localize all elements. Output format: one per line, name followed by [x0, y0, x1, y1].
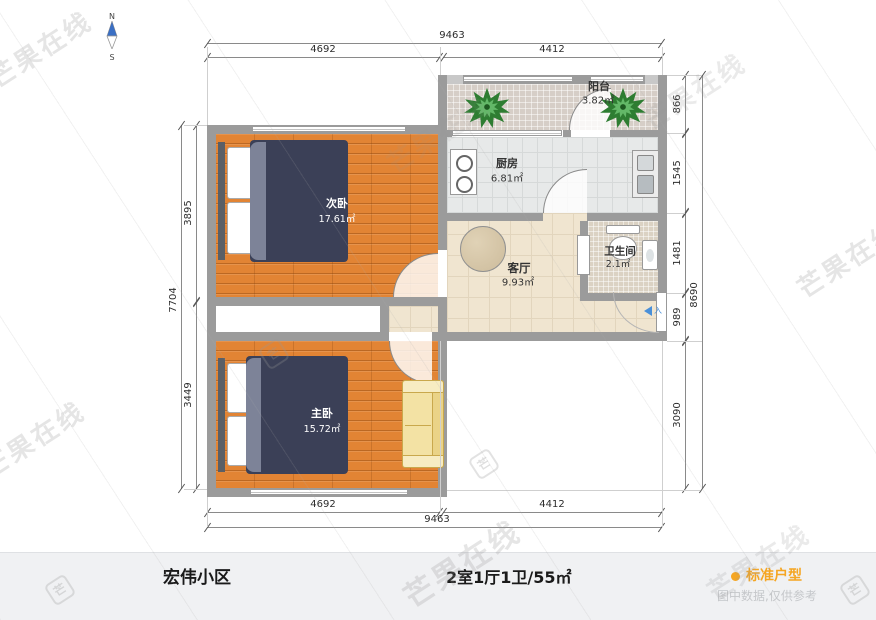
extension-line — [662, 341, 663, 527]
wall — [440, 130, 452, 137]
dimension-line — [685, 133, 686, 213]
dim-label-right-balcony: 866 — [673, 94, 683, 113]
dim-label-right-kitchen: 1545 — [673, 160, 683, 185]
dimension-line — [207, 57, 440, 58]
wall — [440, 213, 543, 221]
extension-line — [667, 213, 685, 214]
wall-cap — [645, 75, 658, 84]
compass: N S — [98, 12, 126, 62]
room-area-bathroom: 2.1㎡ — [606, 256, 631, 270]
extension-line — [667, 293, 685, 294]
layout-spec: 2室1厅1卫/55㎡ — [446, 564, 572, 588]
floorplan-page: N S 入 — [0, 0, 876, 620]
room-label-master-bedroom: 主卧 — [311, 405, 333, 421]
wall — [207, 297, 447, 306]
dimension-line — [196, 302, 197, 489]
footer-bar: 宏伟小区 2室1厅1卫/55㎡ 标准户型 图中数据,仅供参考 — [0, 552, 876, 620]
dimension-line — [685, 293, 686, 341]
sofa — [402, 380, 444, 468]
dim-label-left-total: 7704 — [169, 287, 179, 312]
balcony-window — [463, 76, 573, 82]
dim-label-top-right: 4412 — [539, 44, 564, 56]
burner — [456, 176, 473, 193]
bed-headboard — [218, 142, 225, 260]
round-table — [460, 226, 506, 272]
dimension-line — [702, 75, 703, 489]
sink-basin — [637, 175, 654, 194]
sofa-armrest — [403, 381, 443, 393]
watermark: 芒果在线 — [789, 211, 876, 305]
room-area-balcony: 3.82㎡ — [582, 92, 614, 107]
tag-dot-icon — [731, 572, 740, 581]
wall — [587, 213, 667, 221]
dim-label-left-upper: 3895 — [184, 200, 194, 225]
compass-needle-icon — [104, 21, 120, 49]
wall — [207, 332, 380, 341]
wall — [380, 297, 389, 341]
extension-line — [440, 341, 441, 512]
balcony-inner-window — [452, 130, 562, 136]
bathroom-door-leaf — [577, 235, 590, 275]
watermark: 芒果在线 — [0, 1, 99, 95]
master-bedroom-window — [250, 489, 408, 495]
dim-label-left-lower: 3449 — [184, 382, 194, 407]
burner — [456, 155, 473, 172]
dimension-line — [207, 512, 440, 513]
disclaimer-text: 图中数据,仅供参考 — [717, 587, 817, 604]
wall — [563, 130, 571, 137]
kitchen-sink — [632, 150, 659, 198]
dimension-line — [443, 512, 662, 513]
room-area-living: 9.93㎡ — [502, 274, 534, 289]
compass-south-label: S — [98, 53, 126, 62]
entry-label: 入 — [654, 305, 662, 316]
wall — [610, 130, 667, 137]
room-area-second-bedroom: 17.61㎡ — [319, 211, 356, 225]
wall — [438, 75, 447, 250]
sofa-cushion-divider — [405, 425, 431, 426]
toilet-tank — [606, 225, 640, 234]
sofa-backrest — [432, 391, 443, 457]
blanket-fold — [246, 358, 261, 472]
room-label-second-bedroom: 次卧 — [326, 195, 348, 211]
extension-line — [184, 489, 207, 490]
layout-tag: 标准户型 — [746, 565, 802, 585]
room-area-master-bedroom: 15.72㎡ — [304, 421, 341, 435]
dim-label-bottom-right: 4412 — [539, 499, 564, 511]
extension-line — [184, 125, 207, 126]
bathroom-sink — [642, 240, 658, 270]
bed-headboard — [218, 358, 225, 472]
dimension-line — [207, 527, 662, 528]
compass-north-label: N — [98, 12, 126, 21]
dimension-line — [181, 125, 182, 489]
extension-line — [440, 47, 441, 75]
dim-label-right-lower: 3090 — [673, 402, 683, 427]
sink-basin — [637, 155, 654, 171]
watermark-logo-icon: 芒 — [467, 447, 500, 480]
dim-label-right-entry: 989 — [673, 307, 683, 326]
dim-label-bottom-total: 9463 — [424, 514, 449, 526]
wall — [658, 331, 667, 341]
dim-label-top-left: 4692 — [310, 44, 335, 56]
extension-line — [667, 341, 702, 342]
dim-label-top-total: 9463 — [439, 30, 464, 42]
dimension-line — [443, 57, 662, 58]
dimension-line — [196, 125, 197, 302]
dimension-line — [685, 75, 686, 133]
dimension-line — [207, 43, 662, 44]
second-bedroom-window — [252, 126, 406, 132]
watermark: 芒果在线 — [0, 391, 92, 485]
entry-arrow-icon — [644, 306, 652, 316]
wall — [432, 332, 667, 341]
plant-icon — [464, 86, 510, 128]
extension-line — [662, 47, 663, 75]
dim-label-right-total: 8690 — [690, 282, 700, 307]
extension-line — [667, 133, 685, 134]
dimension-line — [685, 341, 686, 489]
blanket-fold — [250, 142, 266, 260]
stove — [450, 149, 477, 195]
wall — [207, 125, 216, 497]
extension-line — [207, 47, 208, 125]
sink-basin — [646, 249, 654, 262]
sofa-armrest — [403, 455, 443, 467]
extension-line — [207, 497, 208, 527]
extension-line — [667, 75, 702, 76]
dimension-line — [685, 213, 686, 293]
dim-label-bottom-left: 4692 — [310, 499, 335, 511]
room-area-kitchen: 6.81㎡ — [491, 170, 523, 185]
dim-label-right-bathroom: 1481 — [673, 240, 683, 265]
wall — [658, 75, 667, 293]
community-name: 宏伟小区 — [163, 563, 231, 588]
wall-cap — [447, 75, 463, 84]
